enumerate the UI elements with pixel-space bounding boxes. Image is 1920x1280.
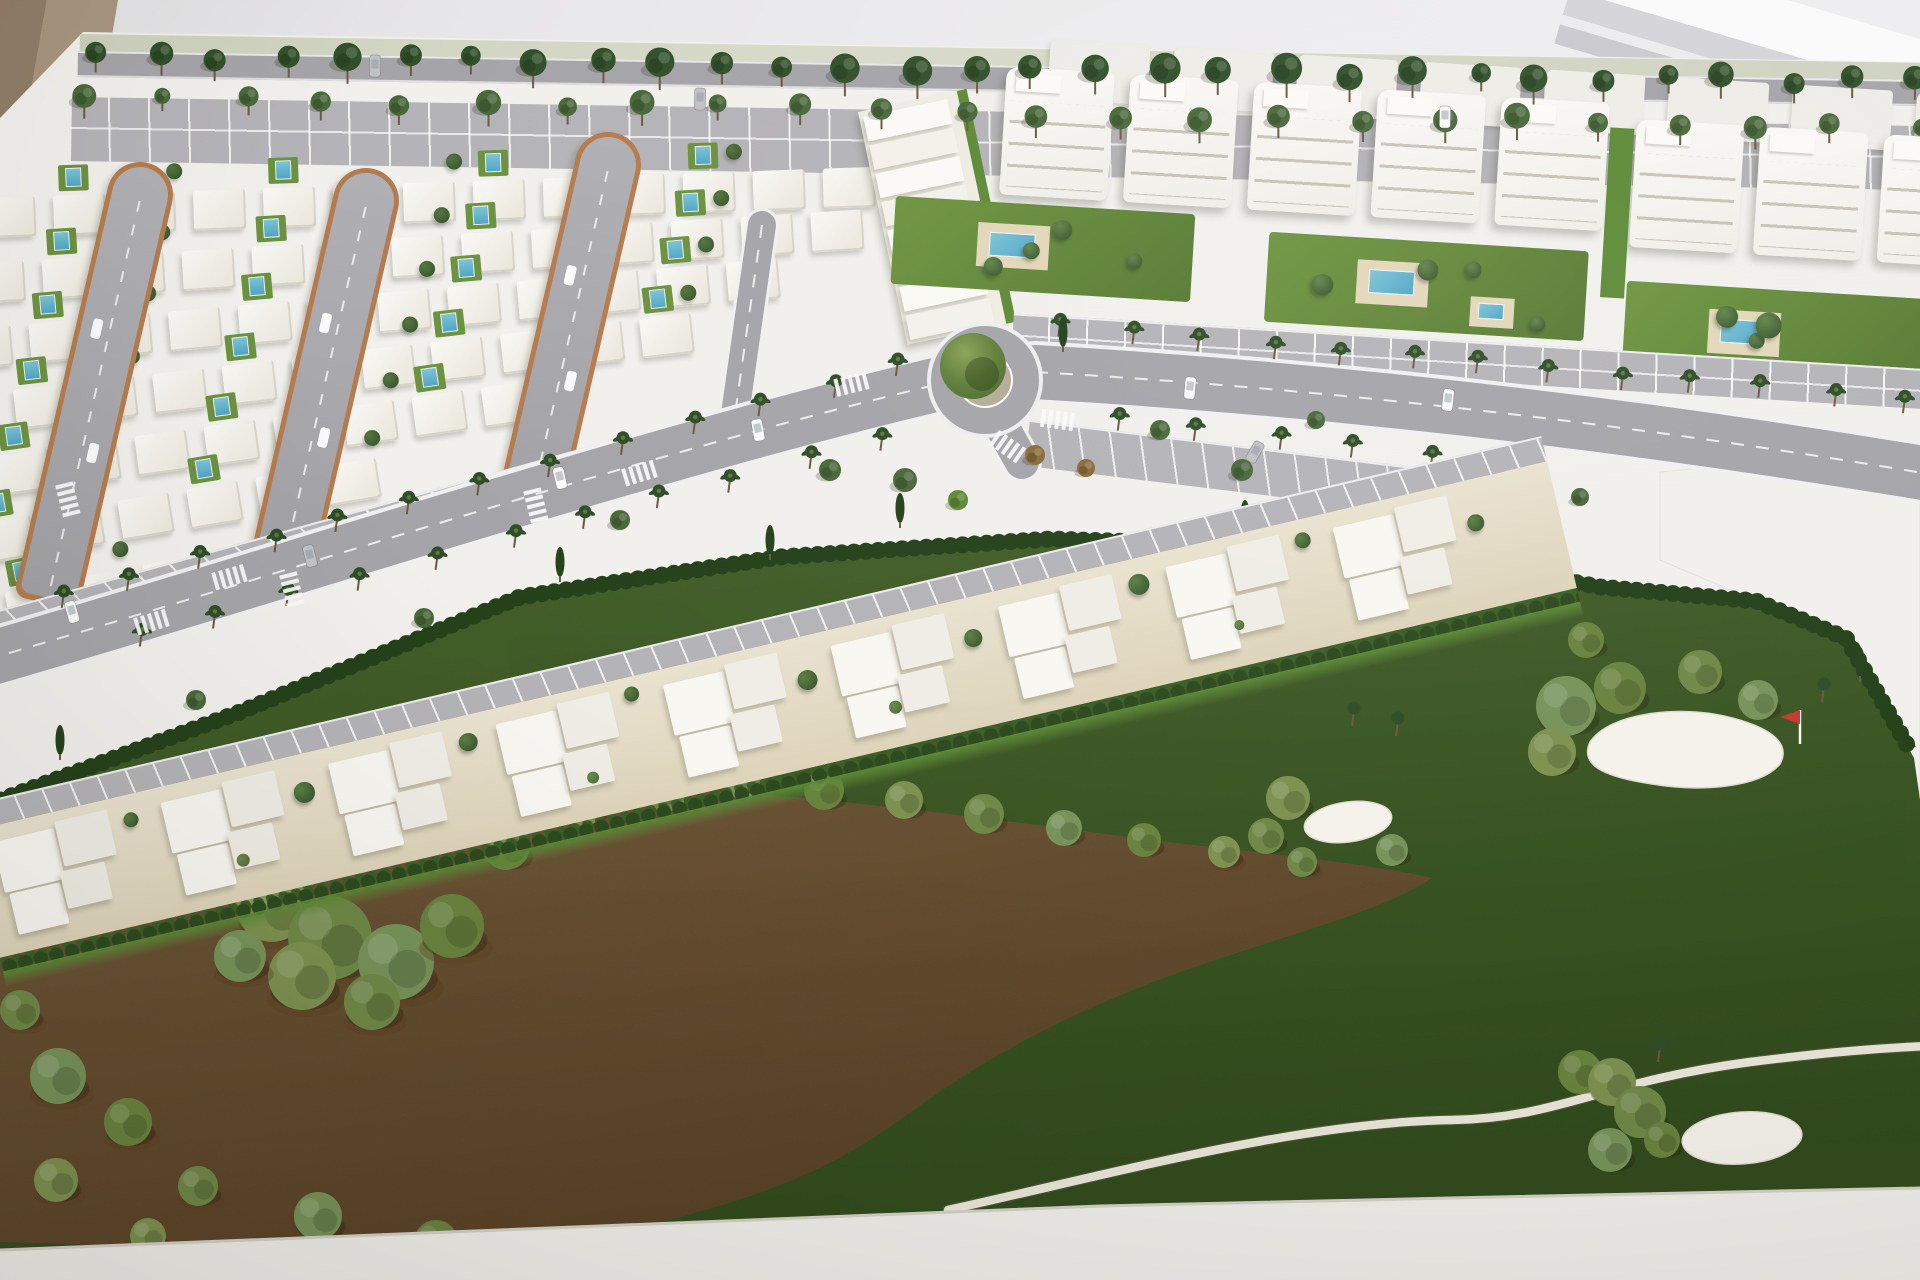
townhouse-building [562,744,615,792]
palm-crown-center [621,436,625,440]
bush-highlight [37,1055,59,1077]
palm-crown-center [198,549,202,553]
car-glass [1186,381,1194,391]
palm-crown-center [1118,411,1122,415]
townhouse-cluster [662,652,803,785]
palm-crown-center [1413,349,1417,353]
crosswalk-bar [1068,413,1074,431]
crosswalk-bar [1040,409,1046,427]
palm-crown-center [1430,449,1434,453]
model-tree [962,627,983,648]
palm-crown-center [728,473,732,477]
bush-highlight [1380,838,1393,851]
tree-highlight [1277,108,1286,117]
tree-highlight [320,94,328,102]
tree-highlight [95,45,103,53]
townhouse-building [394,783,447,831]
palm-crown-center [1274,340,1278,344]
bush-highlight [1544,684,1568,708]
palm-crown-center [1546,363,1550,367]
palm-crown-center [514,528,518,532]
model-car [1439,106,1450,128]
townhouse-cluster [1331,495,1472,628]
palm-crown [1348,702,1361,715]
palm-crown-center [435,551,439,555]
bush-highlight [1534,734,1553,753]
townhouse-building [9,882,69,935]
palm-crown-center [1351,438,1355,442]
tree-highlight [1198,111,1208,121]
tree-highlight [195,693,203,701]
tree-highlight [1602,73,1611,82]
tree-highlight [1216,61,1226,71]
cypress-tree [896,493,905,523]
tree-highlight [1516,107,1526,117]
tree-highlight [346,47,357,58]
tree-highlight [880,101,889,110]
tree-highlight [916,60,928,72]
tree-highlight [214,52,223,61]
crosswalk [55,481,80,517]
palm-crown-center [1197,332,1201,336]
tree-highlight [1159,423,1167,431]
tree-highlight [1597,116,1605,124]
townhouse-building [177,843,237,896]
townhouse-building [891,613,954,670]
townhouse-building [679,725,739,778]
bush-highlight [40,1164,58,1182]
palm-crown-center [896,357,900,361]
tree-highlight [532,53,543,64]
bush-highlight [969,799,985,815]
car-glass [1441,110,1448,119]
palm-crown [1654,1038,1667,1051]
tree-highlight [1164,57,1176,69]
tree-highlight [83,88,93,98]
tree-highlight [162,90,168,96]
model-tree [457,731,480,754]
tree-highlight [966,105,974,113]
townhouse-cluster [996,573,1137,706]
tree-highlight [843,58,855,70]
townhouse-building [344,804,404,857]
bush-highlight [110,1104,129,1123]
palm-crown-center [1621,371,1625,375]
townhouse-building [227,822,280,870]
bush-highlight [368,934,398,964]
tree-highlight [1851,69,1860,78]
tree-highlight [1362,114,1371,123]
bush-highlight [1594,1134,1612,1152]
tree-highlight [721,55,730,64]
crosswalk [1040,409,1075,431]
tree-highlight [1793,76,1801,84]
bush-highlight [277,951,304,978]
model-tree [1293,531,1312,550]
tree-highlight [1285,57,1297,69]
model-tree [292,780,317,805]
townhouse-building [221,770,284,827]
palm-crown-center [357,571,361,575]
palm-crown-center [758,397,762,401]
bush-highlight [351,981,373,1003]
cypress-tree [766,525,775,555]
townhouse-building [1394,495,1457,552]
tree-highlight [1679,118,1687,126]
model-car [694,88,705,110]
tree-highlight [1411,60,1422,71]
bush-highlight [1272,782,1290,800]
palm-crown-center [548,458,552,462]
tree-highlight [1828,116,1836,124]
townhouse-building [1399,547,1452,595]
tree-highlight [567,100,574,107]
bush-highlight [1051,815,1065,829]
townhouse-cluster [0,809,133,942]
tree-highlight [410,48,419,57]
car-glass [371,59,378,68]
townhouse-building [1059,574,1122,631]
palm-crown-center [127,572,131,576]
tree-highlight [904,472,914,482]
palm-crown-center [1279,430,1283,434]
townhouse-building [556,692,619,749]
palm-crown-center [1758,378,1762,382]
tree-highlight [470,49,478,57]
model-tree [795,668,819,692]
cypress-tree [1059,317,1068,347]
tree-highlight [1241,462,1250,471]
tree-highlight [1094,59,1105,70]
palm-crown-center [335,513,339,517]
tree-highlight [1085,462,1092,469]
townhouse-building [897,665,950,713]
palm-crown-center [1903,394,1907,398]
bush-highlight [1564,1056,1582,1074]
tree-highlight [1035,109,1044,118]
tree-highlight [957,493,965,501]
palm-crown-center [880,431,884,435]
tree-highlight [1754,119,1763,128]
townhouse-building [1349,568,1409,621]
palm-crown-center [1476,354,1480,358]
palm-crown-center [407,495,411,499]
tree-highlight [1315,414,1322,421]
palm-crown-center [1194,422,1198,426]
tree-highlight [976,60,986,70]
palm-crown-center [62,589,66,593]
bush-highlight [183,1171,199,1187]
townhouse-building [54,810,117,867]
palm-crown-center [274,533,278,537]
bush-highlight [1212,840,1225,853]
tree-highlight [1034,448,1042,456]
model-car [1184,377,1197,400]
palm-crown-center [1834,387,1838,391]
tree-highlight [1668,68,1676,76]
tree-highlight [799,97,808,106]
townhouse-cluster [1164,534,1305,667]
car-glass [696,92,703,101]
roundabout-bush-shade [965,357,999,391]
palm-crown-center [477,476,481,480]
car-glass [753,423,762,433]
townhouse-building [512,764,572,817]
tree-highlight [641,94,651,104]
palm-crown-center [583,510,587,514]
tree-highlight [1119,110,1128,119]
tree-highlight [781,60,789,68]
townhouse-building [1181,607,1241,660]
model-tree [1126,572,1151,597]
palm-crown-center [1132,325,1136,329]
bush-highlight [1131,827,1145,841]
townhouse-cluster [494,691,635,824]
car-glass [1444,393,1452,403]
model-car [369,55,380,77]
bush-highlight [1684,656,1702,674]
model-tree [623,685,641,703]
tree-highlight [487,94,497,104]
tree-highlight [1532,69,1543,80]
tree-highlight [398,98,406,106]
palm-crown-center [657,489,661,493]
crosswalk-bar [57,488,75,496]
bush-highlight [1291,851,1303,863]
crosswalk-bar [55,481,73,489]
townhouse-building [389,731,452,788]
bush-highlight [1649,1127,1663,1141]
model-photo-scene [0,0,1920,1280]
palm-crown-center [1688,373,1692,377]
townhouse-building [1226,535,1289,592]
townhouse-cluster [159,770,300,903]
townhouse-building [1014,646,1074,699]
tree-highlight [1579,491,1586,498]
palm-crown [1392,712,1405,725]
townhouse-cluster [829,613,970,746]
tree-highlight [602,51,612,61]
palm-crown-center [1339,346,1343,350]
tree-highlight [1720,65,1730,75]
tree-highlight [619,513,627,521]
tree-highlight [423,611,431,619]
crosswalk-bar [1061,412,1067,430]
model-car [1245,440,1266,465]
model-tree [122,810,140,828]
townhouse-cluster [327,731,468,864]
bush-highlight [1601,669,1622,690]
tree-highlight [248,89,256,97]
bush-highlight [1253,823,1267,837]
palm-crown-center [809,450,813,454]
model-car [1441,388,1454,411]
crosswalk-bar [1054,411,1060,429]
palm-crown-center [213,609,217,613]
cypress-tree [556,547,565,577]
crosswalk-bar [60,502,78,510]
crosswalk-bar [1047,410,1053,428]
bush-highlight [1621,1093,1642,1114]
cypress-tree [56,725,65,755]
tree-highlight [1029,58,1038,67]
tree-highlight [829,462,838,471]
tree-highlight [1348,68,1359,78]
palm-crown-center [693,415,697,419]
model-tree [1466,513,1486,533]
cypress-tree [1856,647,1865,677]
townhouse-building [1064,626,1117,674]
palm-crown [1818,678,1831,691]
crosswalk-bar [59,495,77,503]
townhouse-building [729,704,782,752]
bush-highlight [135,1223,149,1237]
tree-highlight [288,49,297,58]
townhouse-building [60,861,113,909]
tree-highlight [658,52,670,64]
bush-highlight [1743,685,1759,701]
crosswalk-bar [62,509,80,517]
bush-highlight [300,1198,319,1217]
tree-highlight [1480,66,1488,74]
townhouse-building [724,652,787,709]
tree-highlight [160,45,169,54]
bush-highlight [1594,1064,1613,1083]
tree-highlight [717,97,724,104]
